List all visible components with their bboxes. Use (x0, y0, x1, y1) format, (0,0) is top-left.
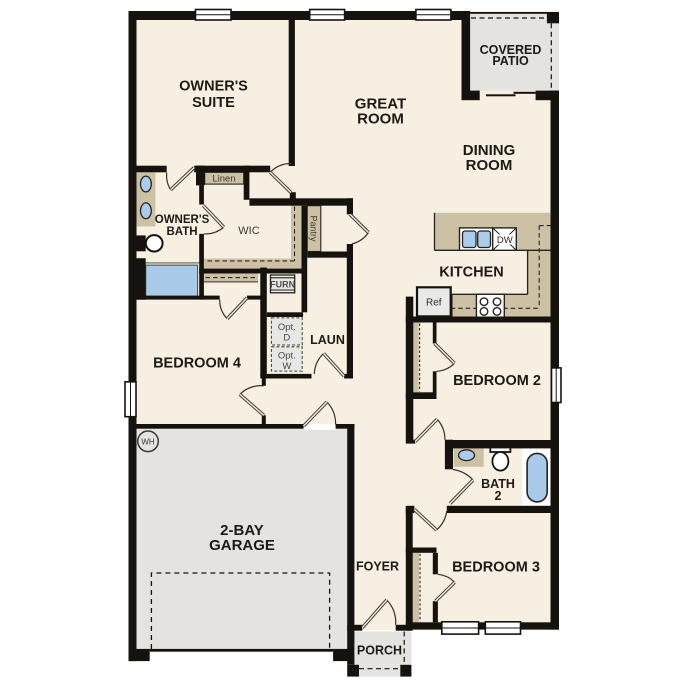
svg-text:PORCH: PORCH (357, 644, 402, 658)
svg-text:GARAGE: GARAGE (209, 537, 275, 554)
svg-text:BEDROOM 3: BEDROOM 3 (452, 560, 540, 576)
svg-text:Opt.: Opt. (278, 351, 296, 362)
svg-text:D: D (283, 333, 290, 344)
svg-text:FOYER: FOYER (356, 560, 399, 574)
svg-text:FURN: FURN (270, 280, 295, 290)
svg-text:WH: WH (141, 437, 155, 446)
svg-text:WIC: WIC (238, 225, 259, 237)
svg-text:KITCHEN: KITCHEN (439, 265, 503, 281)
svg-text:W: W (282, 361, 291, 372)
svg-text:Linen: Linen (212, 174, 235, 185)
svg-text:DW: DW (497, 235, 513, 246)
svg-text:LAUN: LAUN (310, 333, 345, 347)
svg-text:BATH: BATH (166, 226, 197, 238)
svg-text:BEDROOM 2: BEDROOM 2 (453, 373, 541, 389)
svg-text:OWNER'S: OWNER'S (155, 214, 210, 226)
svg-text:BEDROOM 4: BEDROOM 4 (153, 356, 241, 372)
svg-text:Opt.: Opt. (278, 322, 296, 333)
svg-text:Ref: Ref (426, 298, 442, 309)
svg-text:ROOM: ROOM (357, 111, 404, 128)
svg-text:PATIO: PATIO (492, 54, 529, 68)
svg-text:Pantry: Pantry (309, 215, 319, 242)
svg-text:SUITE: SUITE (192, 95, 235, 111)
svg-text:2: 2 (495, 489, 502, 503)
svg-text:OWNER'S: OWNER'S (179, 79, 248, 95)
svg-text:ROOM: ROOM (466, 157, 513, 174)
